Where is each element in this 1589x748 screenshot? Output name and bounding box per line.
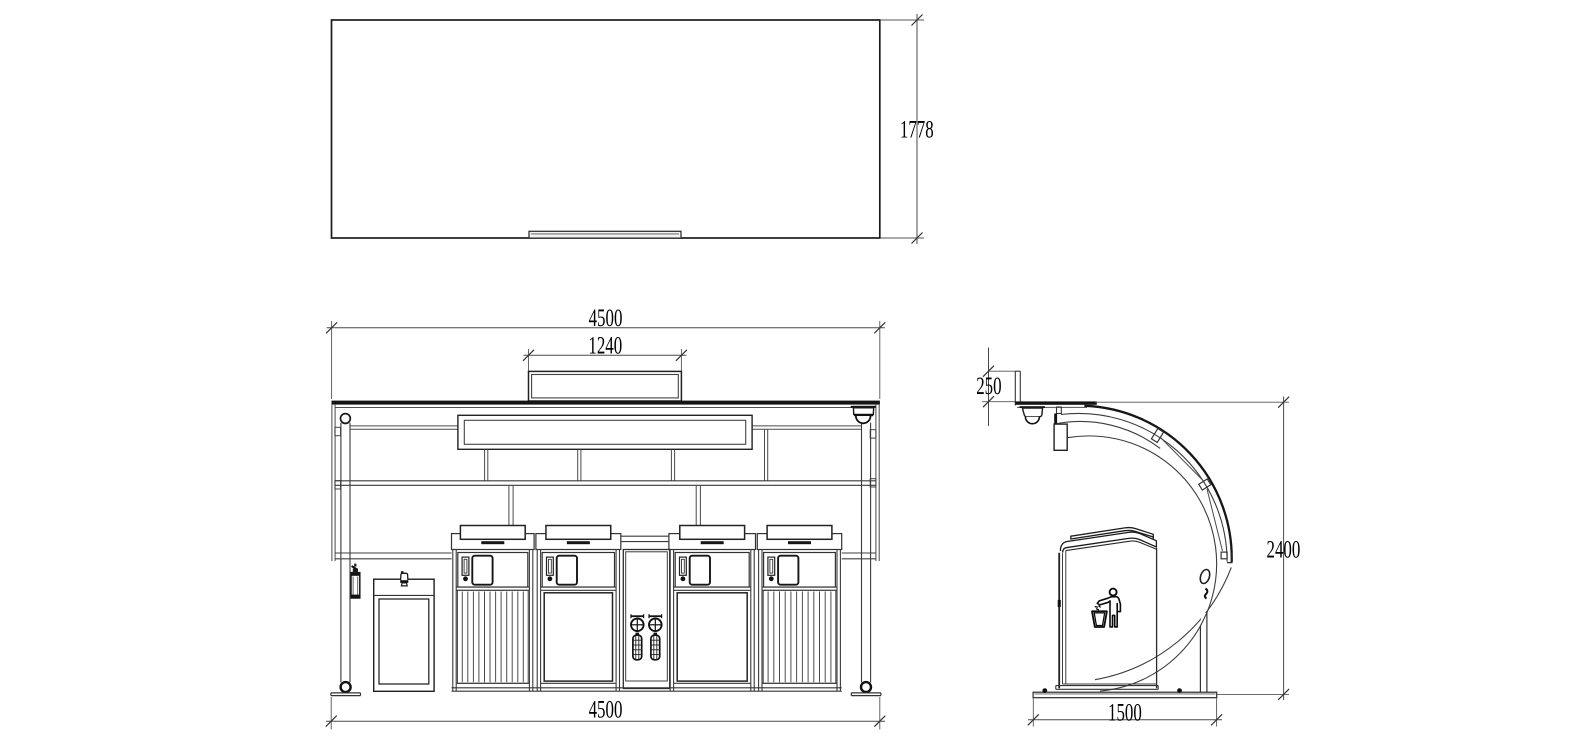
svg-text:4500: 4500 bbox=[589, 695, 623, 724]
svg-text:1778: 1778 bbox=[900, 114, 934, 143]
svg-text:1500: 1500 bbox=[1108, 698, 1142, 727]
svg-text:250: 250 bbox=[976, 371, 1001, 400]
svg-text:4500: 4500 bbox=[589, 303, 623, 332]
svg-text:2400: 2400 bbox=[1267, 534, 1301, 563]
svg-text:1240: 1240 bbox=[588, 331, 622, 360]
